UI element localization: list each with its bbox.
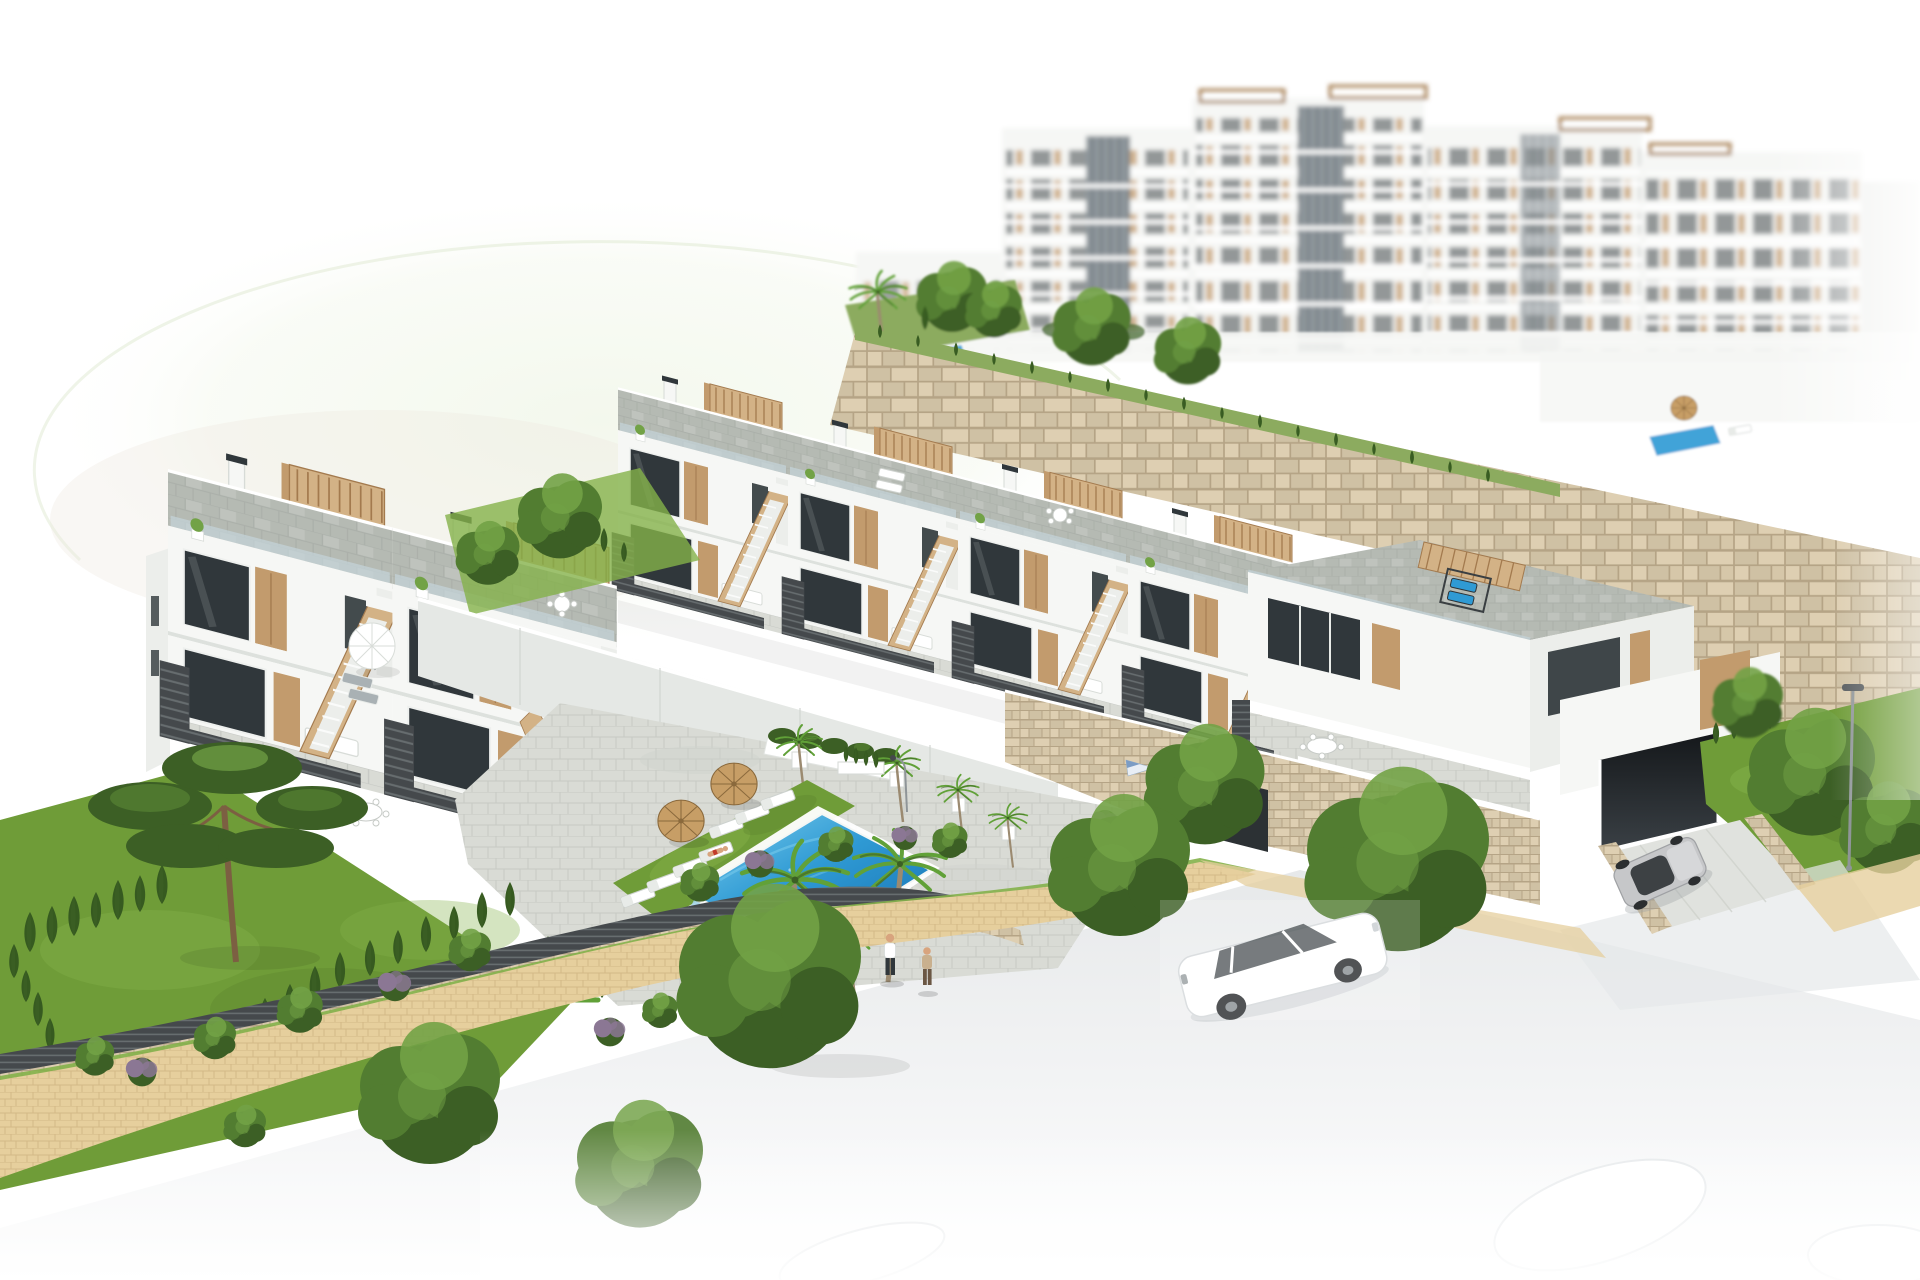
architectural-render	[0, 0, 1920, 1280]
render-page	[0, 0, 1920, 1280]
bottom-fade	[480, 1130, 1920, 1280]
